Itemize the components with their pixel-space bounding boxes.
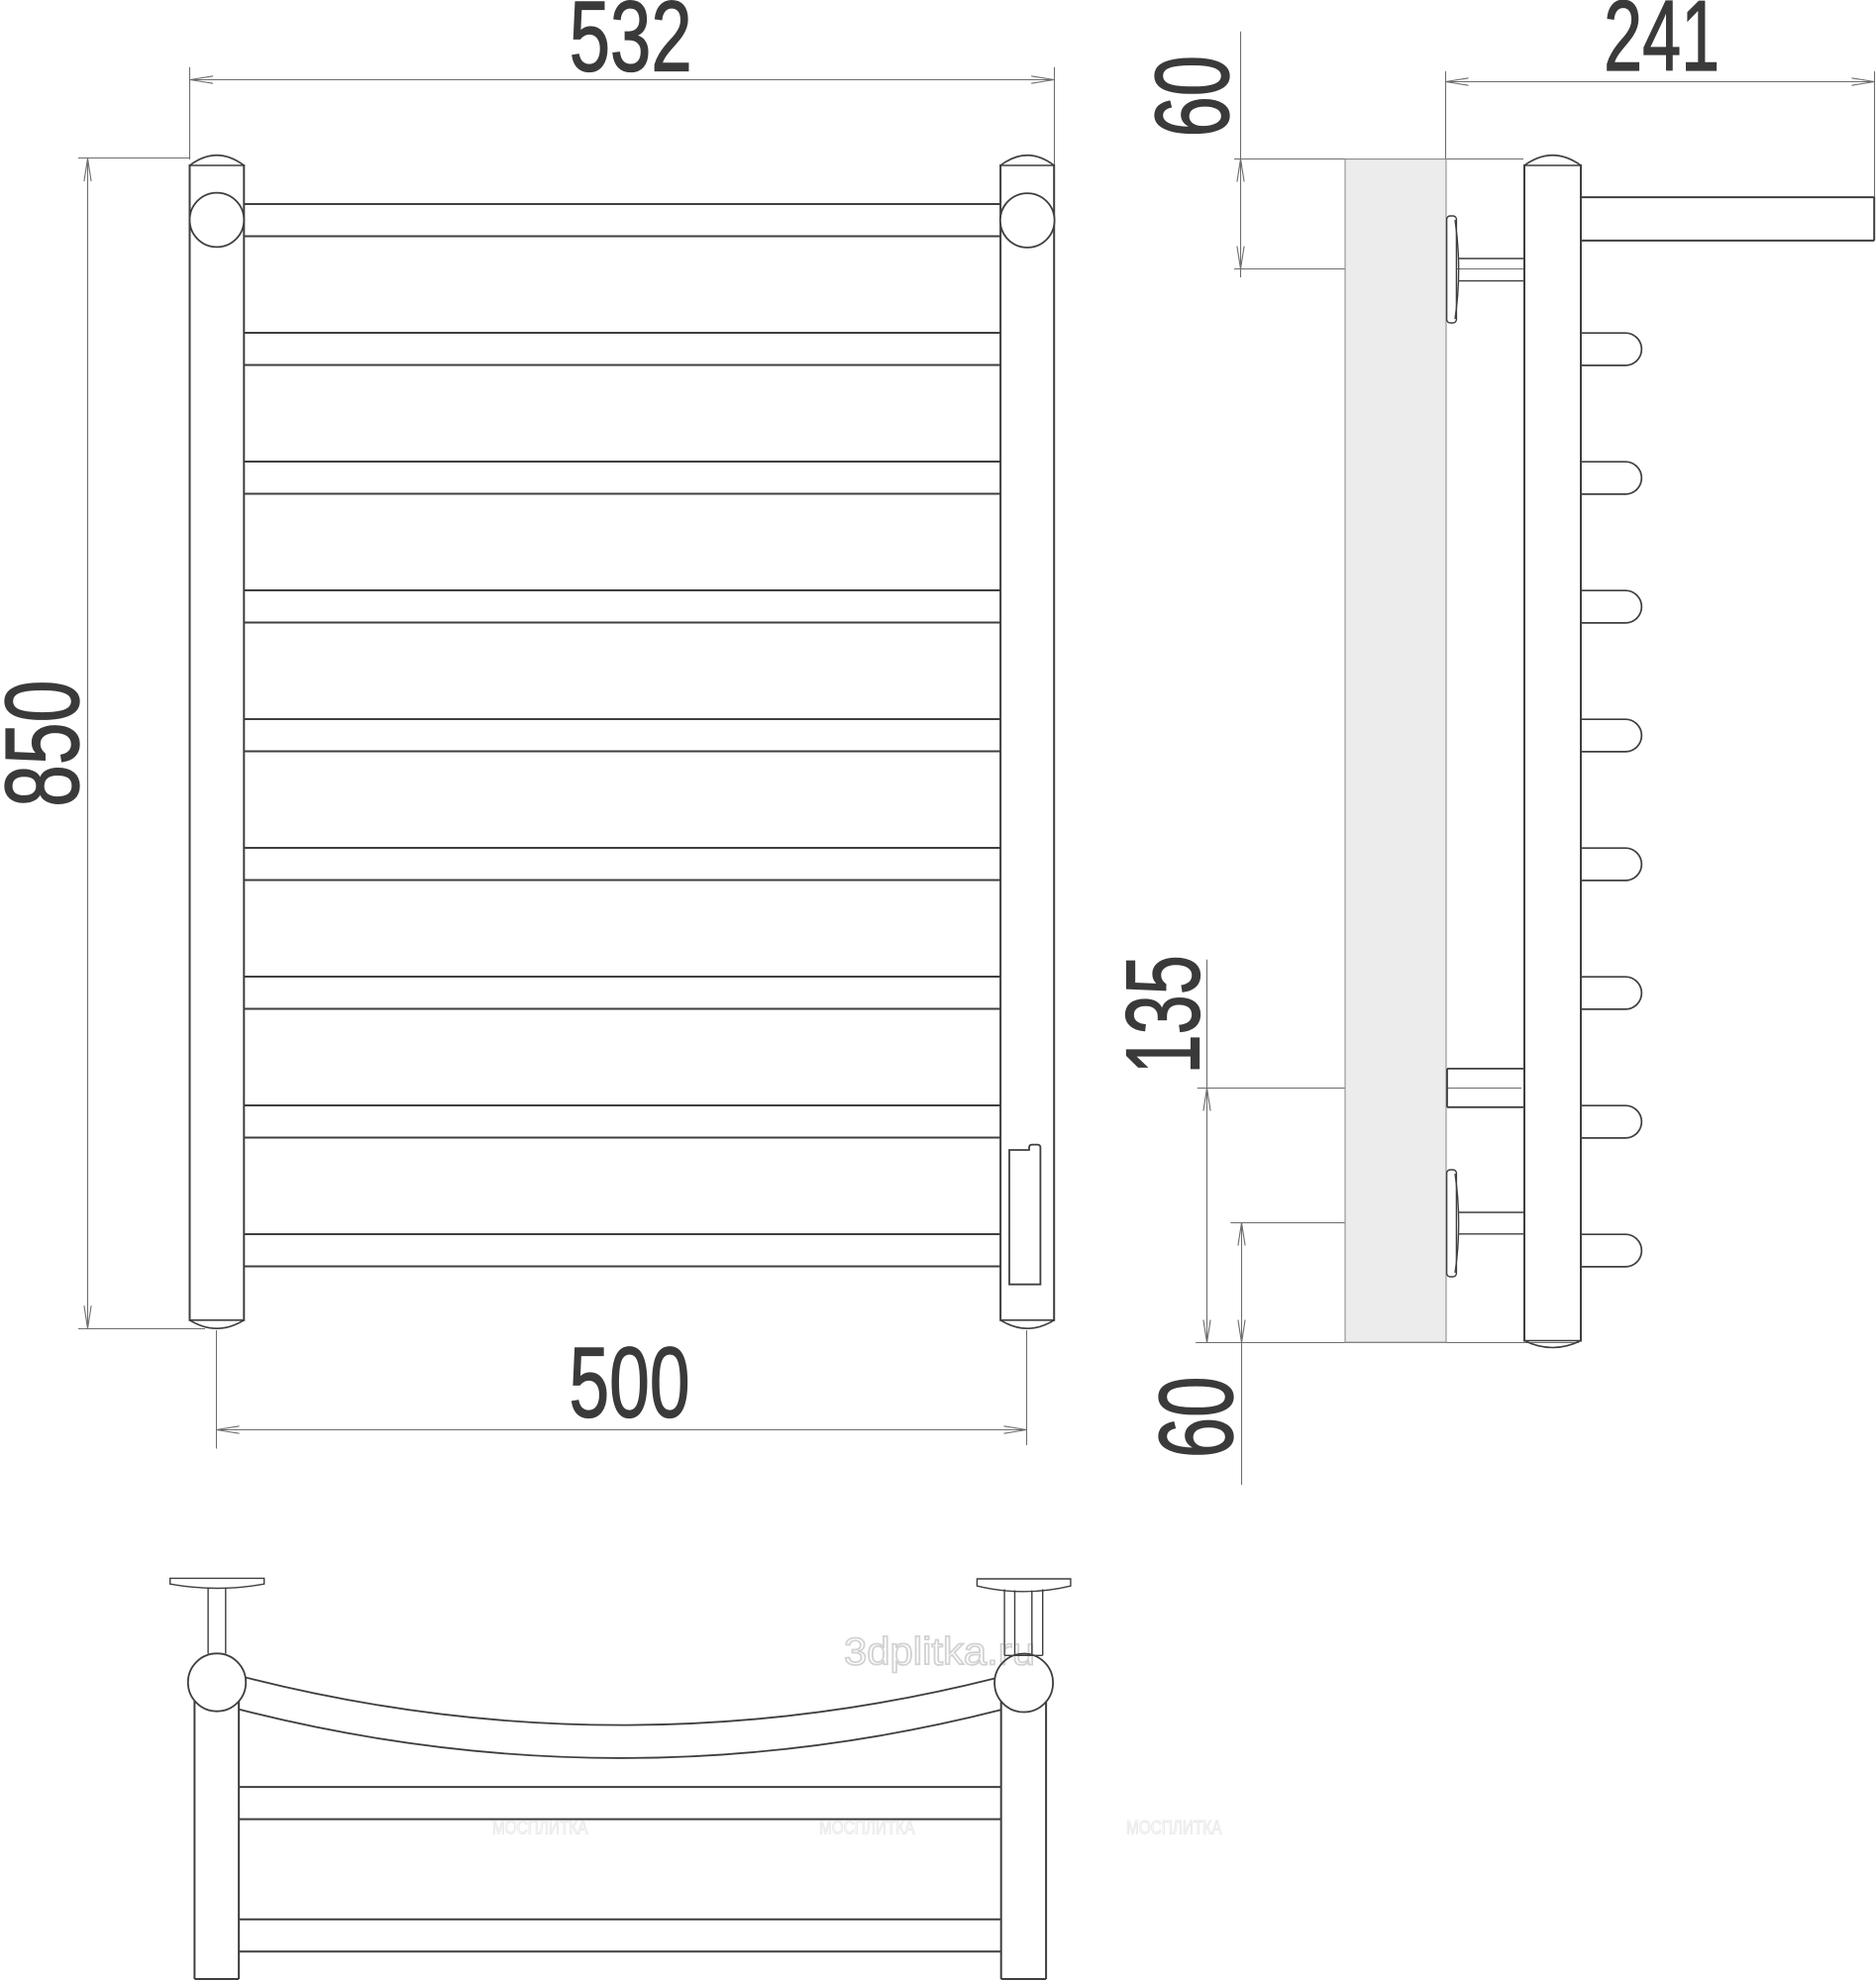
- svg-text:850: 850: [0, 680, 101, 807]
- svg-text:500: 500: [570, 1328, 690, 1439]
- svg-text:3dplitka.ru: 3dplitka.ru: [844, 1631, 1035, 1674]
- svg-text:60: 60: [1134, 55, 1251, 138]
- svg-text:МОСПЛИТКА: МОСПЛИТКА: [819, 1818, 915, 1839]
- svg-text:135: 135: [1105, 955, 1222, 1074]
- svg-text:532: 532: [570, 0, 692, 93]
- svg-text:МОСПЛИТКА: МОСПЛИТКА: [1126, 1818, 1222, 1839]
- svg-text:60: 60: [1138, 1377, 1255, 1459]
- svg-text:МОСПЛИТКА: МОСПЛИТКА: [492, 1818, 588, 1839]
- svg-text:241: 241: [1604, 0, 1720, 92]
